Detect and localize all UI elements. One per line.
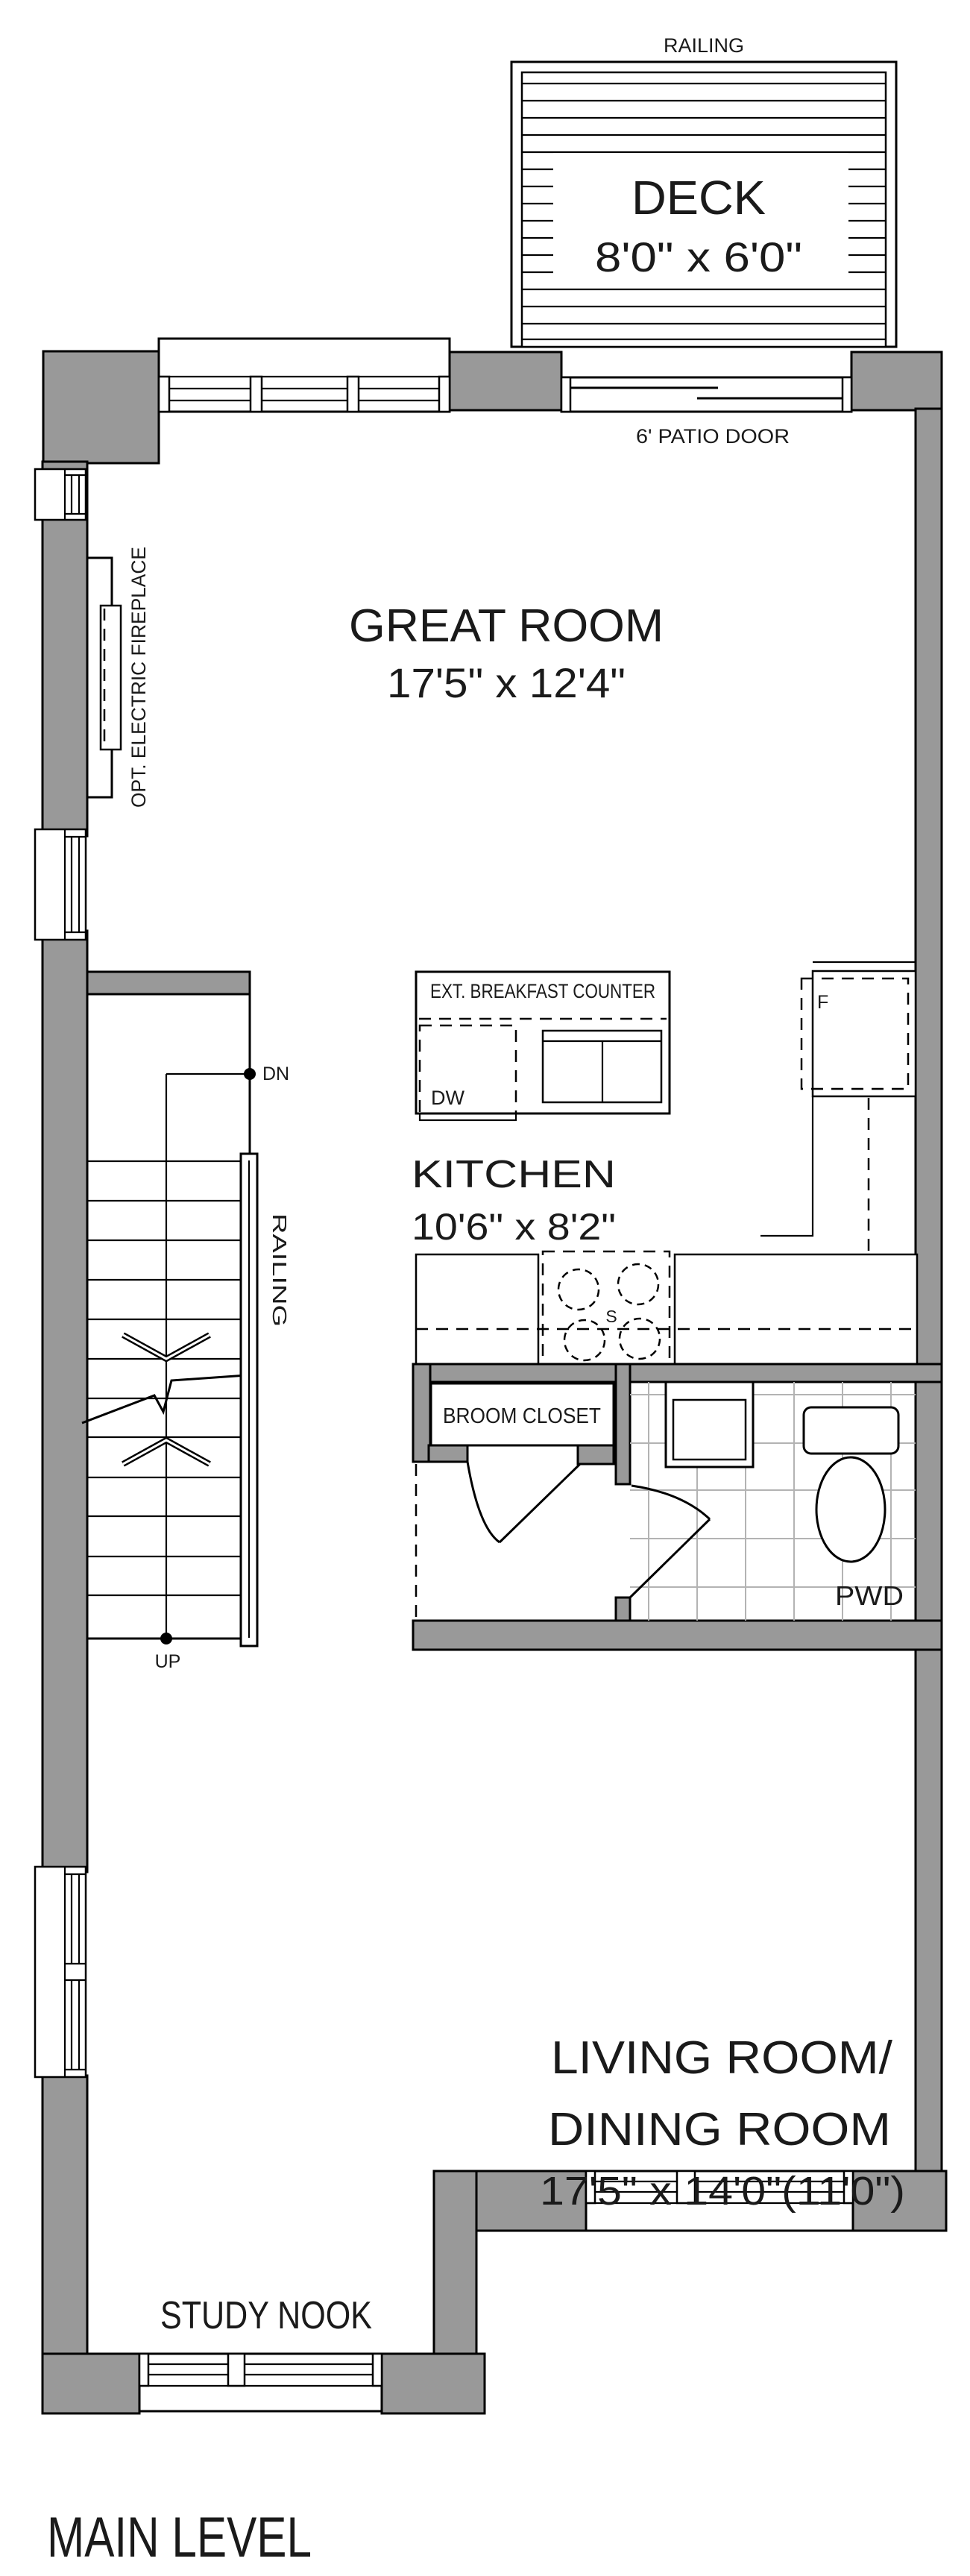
wall-pwd-left-lower — [616, 1598, 630, 1621]
wall-top-left-corner — [43, 351, 159, 463]
deck-name-label: DECK — [632, 171, 766, 224]
dishwasher-label: DW — [431, 1087, 464, 1109]
living-room-dims-label: 17'5" x 14'0"(11'0") — [540, 2169, 905, 2214]
kitchen-name-label: KITCHEN — [412, 1153, 616, 1196]
kitchen-dims-label: 10'6" x 8'2" — [412, 1206, 616, 1248]
study-nook-label: STUDY NOOK — [160, 2294, 372, 2337]
great-room-name-label: GREAT ROOM — [349, 600, 664, 652]
up-label: UP — [155, 1651, 181, 1672]
toilet-tank-icon — [804, 1407, 898, 1454]
living-room-label-line2: DINING ROOM — [548, 2104, 891, 2155]
wall-top-mid — [450, 352, 561, 410]
bottom-counter-left — [416, 1254, 538, 1364]
wall-top-right-corner — [851, 352, 942, 410]
patio-door — [561, 377, 851, 412]
toilet-bowl-icon — [816, 1457, 885, 1562]
window-left-bay2 — [35, 829, 86, 940]
living-room-label-line1: LIVING ROOM/ — [551, 2032, 893, 2084]
up-dot — [160, 1633, 172, 1644]
window-top-triple — [159, 339, 450, 412]
level-title: MAIN LEVEL — [47, 2506, 312, 2569]
closet-jamb-left — [429, 1445, 467, 1462]
wall-closet-top — [413, 1364, 942, 1382]
powder-room-label: PWD — [835, 1580, 904, 1611]
stove-label: S — [605, 1307, 617, 1326]
patio-door-label: 6' PATIO DOOR — [636, 425, 790, 447]
wall-study-bottom-right — [382, 2354, 485, 2413]
fireplace-label: OPT. ELECTRIC FIREPLACE — [127, 547, 150, 808]
wall-pwd-bottom — [413, 1621, 942, 1650]
fridge-label: F — [817, 992, 828, 1013]
great-room-dims-label: 17'5" x 12'4" — [387, 659, 626, 706]
floor-plan-page: RAILING DECK 8'0" x 6'0" — [0, 0, 970, 2576]
closet-jamb-right — [578, 1445, 614, 1464]
deck-railing-label: RAILING — [664, 34, 744, 57]
wall-left-seg2 — [42, 931, 87, 1872]
stair-top-wall — [87, 972, 250, 994]
window-study-bottom — [139, 2354, 382, 2411]
deck: RAILING DECK 8'0" x 6'0" — [511, 34, 896, 347]
window-left-bay1 — [35, 469, 86, 520]
wall-pwd-left-upper — [616, 1364, 630, 1484]
floor-plan-drawing: RAILING DECK 8'0" x 6'0" — [0, 0, 970, 2576]
dn-label: DN — [262, 1064, 289, 1084]
bottom-counter-right — [675, 1254, 917, 1364]
deck-dims-label: 8'0" x 6'0" — [595, 233, 802, 280]
island-label: EXT. BREAKFAST COUNTER — [430, 980, 655, 1002]
pwd-sink-vanity — [666, 1382, 753, 1467]
sink-basin-icon — [673, 1400, 746, 1460]
wall-right — [916, 409, 942, 2231]
window-left-bay3 — [35, 1867, 86, 2077]
fridge-counter — [813, 971, 916, 1096]
stair-railing-label: RAILING — [268, 1213, 291, 1327]
wall-study-bottom-left — [42, 2354, 139, 2413]
wall-left-fireplace — [42, 518, 87, 836]
dn-dot — [244, 1068, 256, 1080]
broom-closet-label: BROOM CLOSET — [443, 1404, 601, 1428]
